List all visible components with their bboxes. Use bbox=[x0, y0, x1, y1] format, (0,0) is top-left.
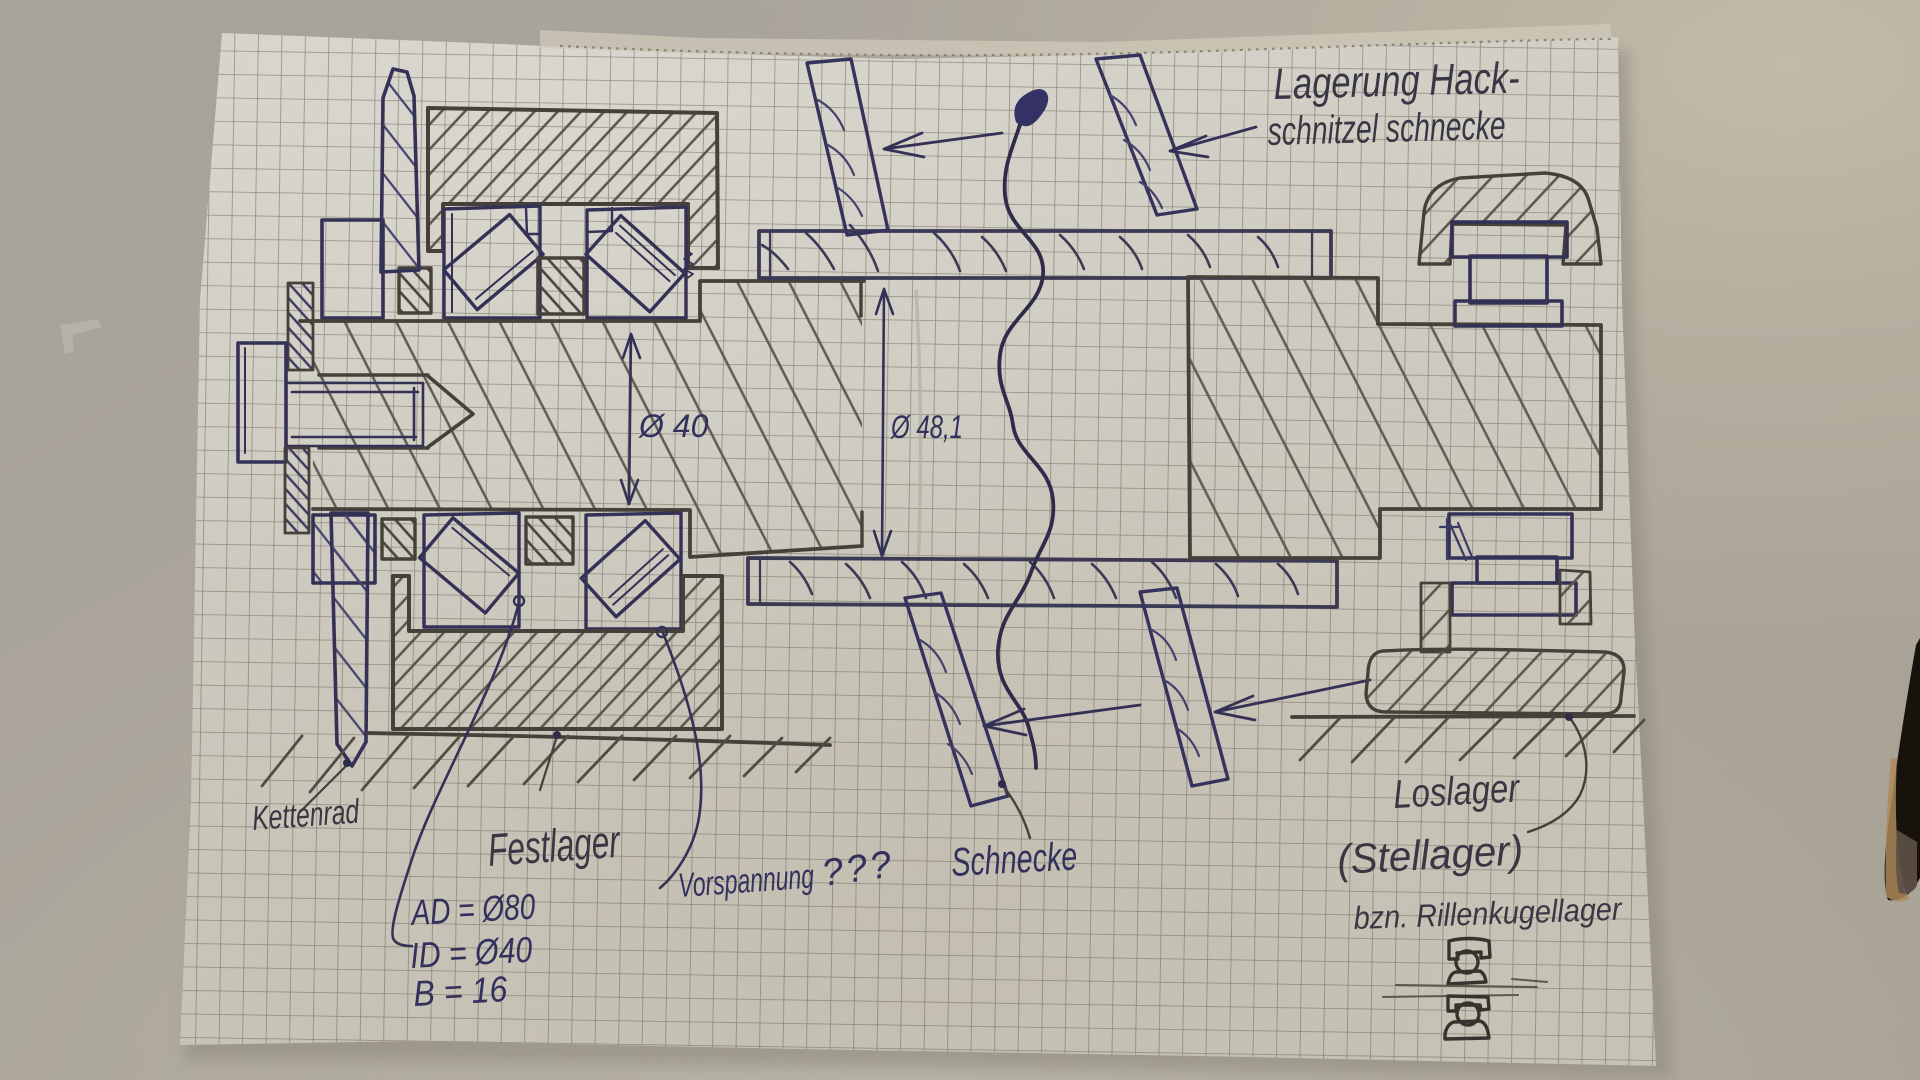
svg-text:(Stellager): (Stellager) bbox=[1336, 826, 1524, 883]
svg-text:ID = Ø40: ID = Ø40 bbox=[409, 929, 533, 976]
svg-text:Ø 40: Ø 40 bbox=[638, 408, 709, 444]
svg-text:Festlager: Festlager bbox=[486, 815, 622, 876]
svg-text:Ø 48,1: Ø 48,1 bbox=[890, 409, 963, 445]
svg-text:Loslager: Loslager bbox=[1392, 766, 1522, 817]
svg-text:B = 16: B = 16 bbox=[412, 968, 509, 1014]
svg-text:schnitzel schnecke: schnitzel schnecke bbox=[1267, 104, 1506, 154]
svg-text:Schnecke: Schnecke bbox=[950, 834, 1078, 885]
svg-text:Kettenrad: Kettenrad bbox=[251, 793, 361, 838]
svg-text:AD = Ø80: AD = Ø80 bbox=[409, 886, 537, 934]
svg-text:Lagerung Hack-: Lagerung Hack- bbox=[1273, 54, 1520, 109]
